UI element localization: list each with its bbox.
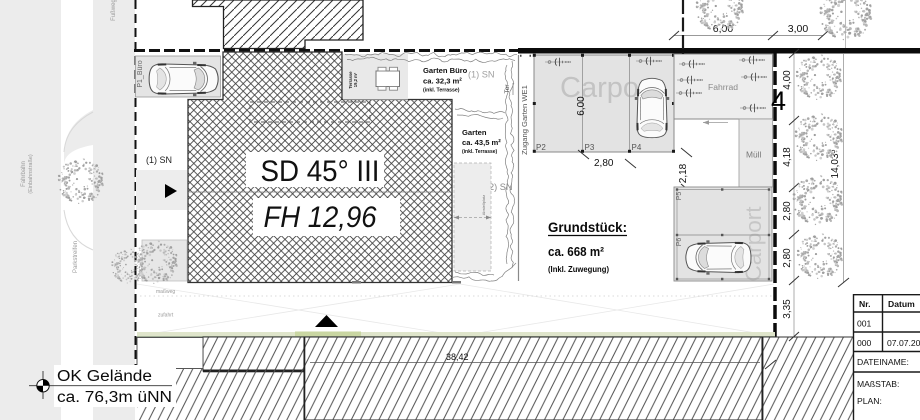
svg-text:Fußweg: Fußweg: [111, 0, 117, 21]
svg-text:OK Gelände: OK Gelände: [57, 368, 152, 385]
svg-text:(1) SN: (1) SN: [468, 70, 495, 80]
svg-text:MAßSTAB:: MAßSTAB:: [857, 379, 899, 389]
svg-text:P4: P4: [632, 143, 642, 152]
svg-text:6,00: 6,00: [576, 96, 587, 116]
svg-text:2,80: 2,80: [782, 201, 793, 221]
svg-text:Nr.: Nr.: [859, 299, 870, 309]
svg-text:Müll: Müll: [746, 150, 761, 160]
svg-text:ca. 32,3 m²: ca. 32,3 m²: [423, 77, 462, 86]
svg-text:P3: P3: [585, 143, 595, 152]
svg-text:PLAN:: PLAN:: [857, 396, 882, 406]
svg-text:ca. 43,5 m²: ca. 43,5 m²: [462, 138, 501, 147]
svg-text:Garten: Garten: [462, 128, 487, 137]
svg-text:Parkstreifen: Parkstreifen: [73, 241, 79, 273]
svg-text:Datum: Datum: [888, 299, 915, 309]
svg-text:(1) SN: (1) SN: [146, 155, 172, 165]
svg-text:ca. 668 m²: ca. 668 m²: [548, 245, 604, 259]
svg-text:FH 12,96: FH 12,96: [264, 201, 377, 234]
svg-text:Fahrbahn: Fahrbahn: [21, 161, 27, 187]
svg-text:19,2 m²: 19,2 m²: [353, 72, 358, 87]
svg-text:2,80: 2,80: [594, 158, 614, 169]
svg-text:3,35: 3,35: [782, 299, 793, 319]
svg-text:Garten Büro: Garten Büro: [423, 66, 468, 75]
svg-text:Fahrrad: Fahrrad: [708, 82, 738, 92]
svg-text:2,80: 2,80: [782, 248, 793, 268]
svg-text:SD 45° III: SD 45° III: [261, 155, 380, 188]
svg-text:Abstellplatz: Abstellplatz: [481, 195, 486, 215]
svg-text:(Inkl. Zuwegung): (Inkl. Zuwegung): [548, 264, 609, 274]
svg-text:DATEINAME:: DATEINAME:: [857, 357, 909, 367]
svg-text:Zugang Garten WE1: Zugang Garten WE1: [520, 85, 529, 155]
svg-text:ca. 76,3m üNN: ca. 76,3m üNN: [57, 389, 172, 406]
svg-text:P5: P5: [676, 192, 683, 201]
svg-text:Tor: Tor: [504, 84, 511, 94]
svg-text:Grundstück:: Grundstück:: [548, 219, 627, 235]
svg-text:3,00: 3,00: [788, 23, 809, 35]
svg-text:zufahrt: zufahrt: [158, 313, 174, 319]
svg-text:001: 001: [857, 319, 872, 329]
svg-text:(inkl. Terrasse): (inkl. Terrasse): [423, 88, 460, 94]
svg-text:(Einbahnstraße): (Einbahnstraße): [28, 154, 34, 194]
svg-text:P6: P6: [676, 238, 683, 247]
svg-text:4,18: 4,18: [782, 147, 793, 167]
svg-text:4,00: 4,00: [782, 70, 793, 90]
svg-text:(inkl. Terrasse): (inkl. Terrasse): [462, 149, 498, 155]
svg-text:P2: P2: [536, 143, 546, 152]
svg-text:38,42: 38,42: [446, 352, 469, 362]
svg-text:2,18: 2,18: [678, 163, 689, 183]
svg-text:maßweg: maßweg: [156, 289, 175, 295]
svg-text:07.07.201: 07.07.201: [887, 338, 920, 348]
svg-text:P1_Büro: P1_Büro: [137, 60, 144, 87]
svg-text:000: 000: [857, 338, 872, 348]
